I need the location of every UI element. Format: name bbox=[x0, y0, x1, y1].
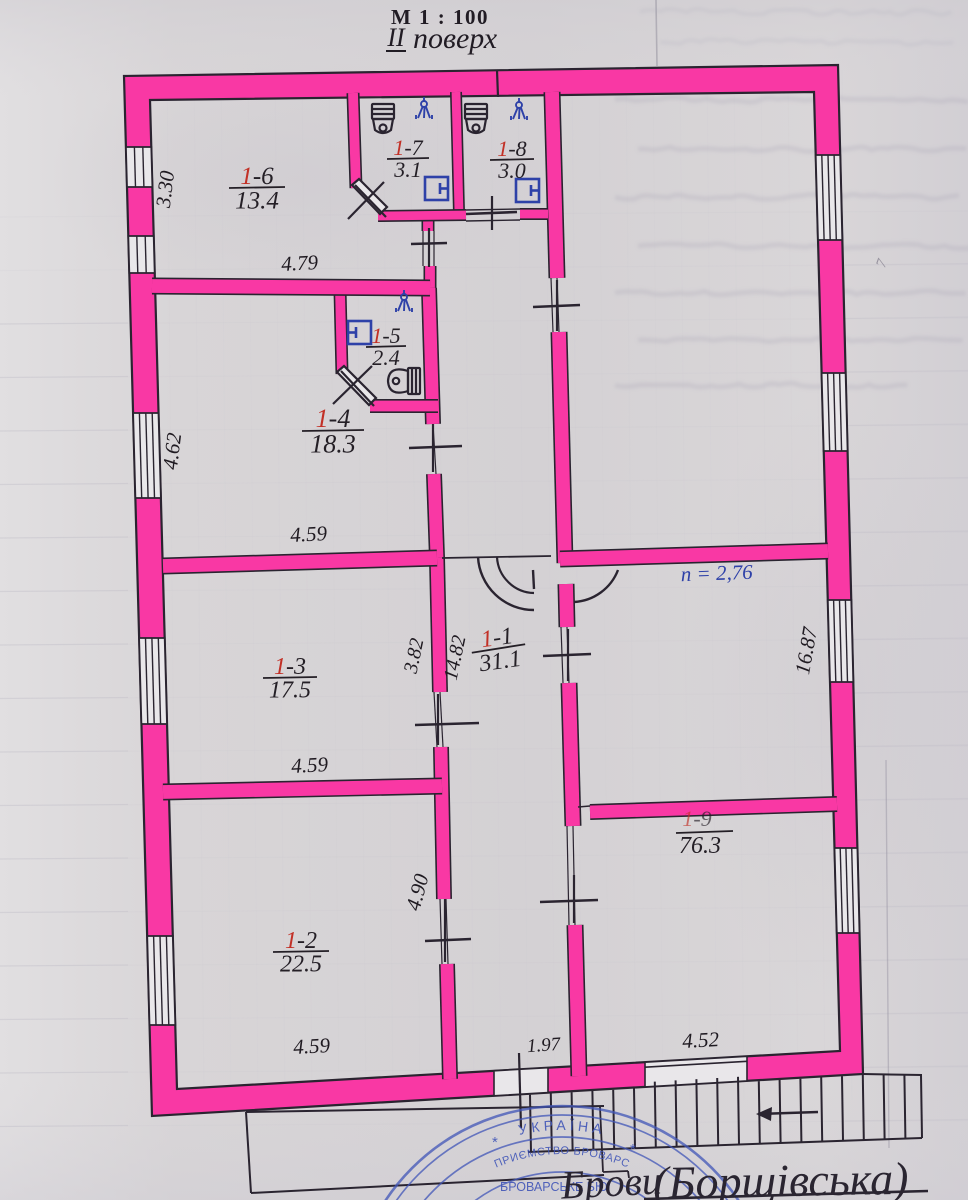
svg-text:Брови: Брови bbox=[559, 1157, 663, 1200]
svg-text:1-3: 1-3 bbox=[274, 654, 306, 680]
svg-text:76.3: 76.3 bbox=[679, 833, 721, 859]
svg-text:22.5: 22.5 bbox=[280, 952, 322, 978]
svg-text:4.59: 4.59 bbox=[291, 752, 329, 778]
svg-text:1-9: 1-9 bbox=[682, 806, 711, 831]
svg-text:4.59: 4.59 bbox=[290, 521, 328, 547]
svg-text:3.0: 3.0 bbox=[497, 158, 526, 183]
svg-text:4.62: 4.62 bbox=[158, 431, 186, 471]
svg-text:1.97: 1.97 bbox=[526, 1034, 562, 1057]
svg-text:ІІ: ІІ bbox=[386, 23, 406, 52]
svg-text:3.30: 3.30 bbox=[151, 169, 179, 210]
svg-text:1-2: 1-2 bbox=[285, 928, 317, 954]
svg-text:13.4: 13.4 bbox=[235, 188, 279, 215]
svg-text:17.5: 17.5 bbox=[269, 678, 311, 704]
svg-text:поверх: поверх bbox=[413, 22, 498, 55]
svg-text:п = 2,76: п = 2,76 bbox=[680, 560, 753, 587]
svg-text:3.1: 3.1 bbox=[393, 157, 422, 182]
svg-text:*: * bbox=[630, 1141, 636, 1158]
svg-text:4.79: 4.79 bbox=[281, 250, 319, 276]
svg-text:*: * bbox=[492, 1134, 498, 1151]
svg-text:18.3: 18.3 bbox=[310, 429, 356, 458]
svg-text:4.52: 4.52 bbox=[682, 1027, 720, 1053]
svg-text:1-6: 1-6 bbox=[240, 163, 274, 190]
svg-text:4.59: 4.59 bbox=[293, 1033, 331, 1059]
svg-text:2.4: 2.4 bbox=[372, 345, 400, 370]
